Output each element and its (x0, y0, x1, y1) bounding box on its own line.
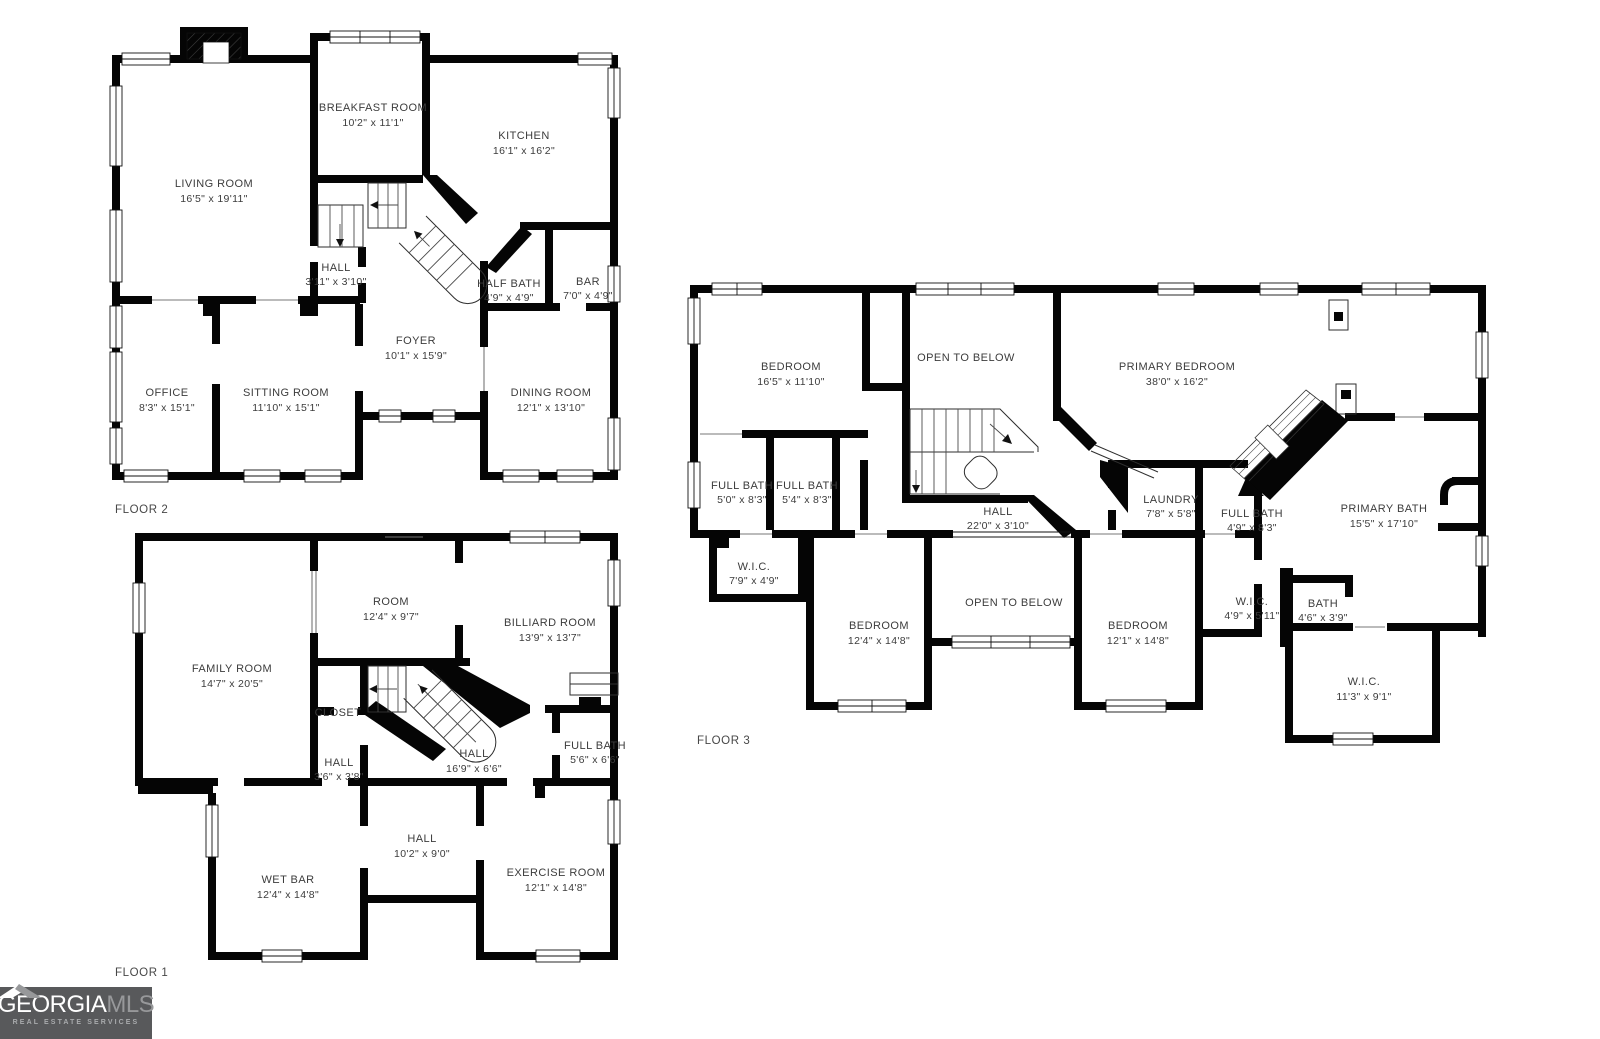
room-dims-label: 4'6" x 3'9" (1298, 612, 1348, 624)
room-dims-label: 16'9" x 6'6" (446, 763, 502, 775)
room-dims-label: 16'5" x 19'11" (180, 193, 248, 205)
room-name-label: FOYER (396, 335, 436, 347)
logo-mls-text: MLS (106, 991, 154, 1018)
room-dims-label: 16'5" x 11'10" (757, 376, 825, 388)
logo-tagline: REAL ESTATE SERVICES (13, 1019, 140, 1026)
floor3-title: FLOOR 3 (697, 735, 750, 747)
room-name-label: OPEN TO BELOW (917, 352, 1015, 364)
room-name-label: FULL BATH (564, 740, 626, 752)
room-name-label: ROOM (373, 596, 409, 608)
roof-icon (0, 984, 42, 998)
room-name-label: PRIMARY BEDROOM (1119, 361, 1235, 373)
floorplan-page: LIVING ROOM 16'5" x 19'11" BREAKFAST ROO… (0, 0, 1600, 1039)
room-name-label: BREAKFAST ROOM (319, 102, 427, 114)
room-name-label: BEDROOM (1108, 620, 1168, 632)
room-name-label: FAMILY ROOM (192, 663, 272, 675)
room-name-label: HALL (321, 262, 350, 274)
room-dims-label: 12'4" x 9'7" (363, 611, 419, 623)
room-dims-label: 4'9" x 4'9" (484, 292, 534, 304)
room-dims-label: 10'1" x 15'9" (385, 350, 447, 362)
room-name-label: BATH (1308, 598, 1338, 610)
room-name-label: HALL (983, 506, 1012, 518)
floor2-stairs (318, 183, 495, 311)
room-dims-label: 11'3" x 9'1" (1336, 691, 1391, 703)
floorplan-drawing: LIVING ROOM 16'5" x 19'11" BREAKFAST ROO… (0, 0, 1600, 1039)
room-name-label: OPEN TO BELOW (965, 597, 1063, 609)
room-dims-label: 5'6" x 6'6" (570, 754, 620, 766)
floor2-title: FLOOR 2 (115, 504, 168, 516)
room-dims-label: 12'4" x 14'8" (848, 635, 910, 647)
room-name-label: CLOSET (315, 707, 362, 719)
room-name-label: W.I.C. (738, 561, 771, 573)
floor1-title: FLOOR 1 (115, 967, 168, 979)
room-dims-label: 4'9" x 8'3" (1227, 522, 1277, 534)
room-dims-label: 3'6" x 3'8" (314, 771, 364, 783)
room-name-label: DINING ROOM (511, 387, 592, 399)
room-labels: LIVING ROOM 16'5" x 19'11" BREAKFAST ROO… (139, 102, 1427, 901)
room-dims-label: 12'1" x 13'10" (517, 402, 585, 414)
fireplace (180, 27, 248, 63)
room-name-label: BILLIARD ROOM (504, 617, 596, 629)
chimney-box (1329, 300, 1348, 330)
room-name-label: FULL BATH (776, 480, 838, 492)
room-dims-label: 5'0" x 8'3" (717, 494, 767, 506)
room-dims-label: 16'1" x 16'2" (493, 145, 555, 157)
room-dims-label: 12'1" x 14'8" (525, 882, 587, 894)
room-dims-label: 5'4" x 8'3" (782, 494, 832, 506)
room-dims-label: 7'8" x 5'8" (1146, 508, 1196, 520)
room-name-label: W.I.C. (1348, 676, 1381, 688)
room-name-label: WET BAR (261, 874, 314, 886)
room-dims-label: 7'9" x 4'9" (729, 575, 779, 587)
room-name-label: FULL BATH (711, 480, 773, 492)
room-name-label: HALF BATH (477, 278, 541, 290)
room-name-label: W.I.C. (1236, 596, 1269, 608)
room-name-label: KITCHEN (498, 130, 549, 142)
room-dims-label: 10'2" x 9'0" (394, 848, 450, 860)
room-name-label: BAR (576, 276, 600, 288)
room-dims-label: 15'5" x 17'10" (1350, 518, 1418, 530)
room-name-label: BEDROOM (761, 361, 821, 373)
room-dims-label: 14'7" x 20'5" (201, 678, 263, 690)
room-name-label: EXERCISE ROOM (507, 867, 606, 879)
room-name-label: HALL (459, 748, 488, 760)
room-dims-label: 7'0" x 4'9" (563, 290, 613, 302)
room-dims-label: 38'0" x 16'2" (1146, 376, 1208, 388)
room-name-label: LAUNDRY (1143, 494, 1199, 506)
room-name-label: HALL (407, 833, 436, 845)
room-dims-label: 10'2" x 11'1" (342, 117, 403, 129)
room-name-label: SITTING ROOM (243, 387, 329, 399)
room-dims-label: 3'11" x 3'10" (305, 276, 366, 288)
room-dims-label: 4'9" x 5'11" (1224, 610, 1279, 622)
room-name-label: OFFICE (145, 387, 188, 399)
room-dims-label: 12'1" x 14'8" (1107, 635, 1169, 647)
floor3-stairs (910, 390, 1348, 513)
room-dims-label: 13'9" x 13'7" (519, 632, 581, 644)
room-name-label: PRIMARY BATH (1341, 503, 1428, 515)
room-name-label: FULL BATH (1221, 508, 1283, 520)
room-dims-label: 12'4" x 14'8" (257, 889, 319, 901)
room-name-label: HALL (324, 757, 353, 769)
room-dims-label: 8'3" x 15'1" (139, 402, 195, 414)
georgia-mls-logo: GEORGIAMLS REAL ESTATE SERVICES (0, 987, 152, 1039)
primary-stair (1230, 390, 1348, 500)
room-dims-label: 22'0" x 3'10" (967, 520, 1029, 532)
chimney-box (1336, 384, 1356, 414)
room-name-label: BEDROOM (849, 620, 909, 632)
room-dims-label: 11'10" x 15'1" (252, 402, 320, 414)
room-name-label: LIVING ROOM (175, 178, 253, 190)
